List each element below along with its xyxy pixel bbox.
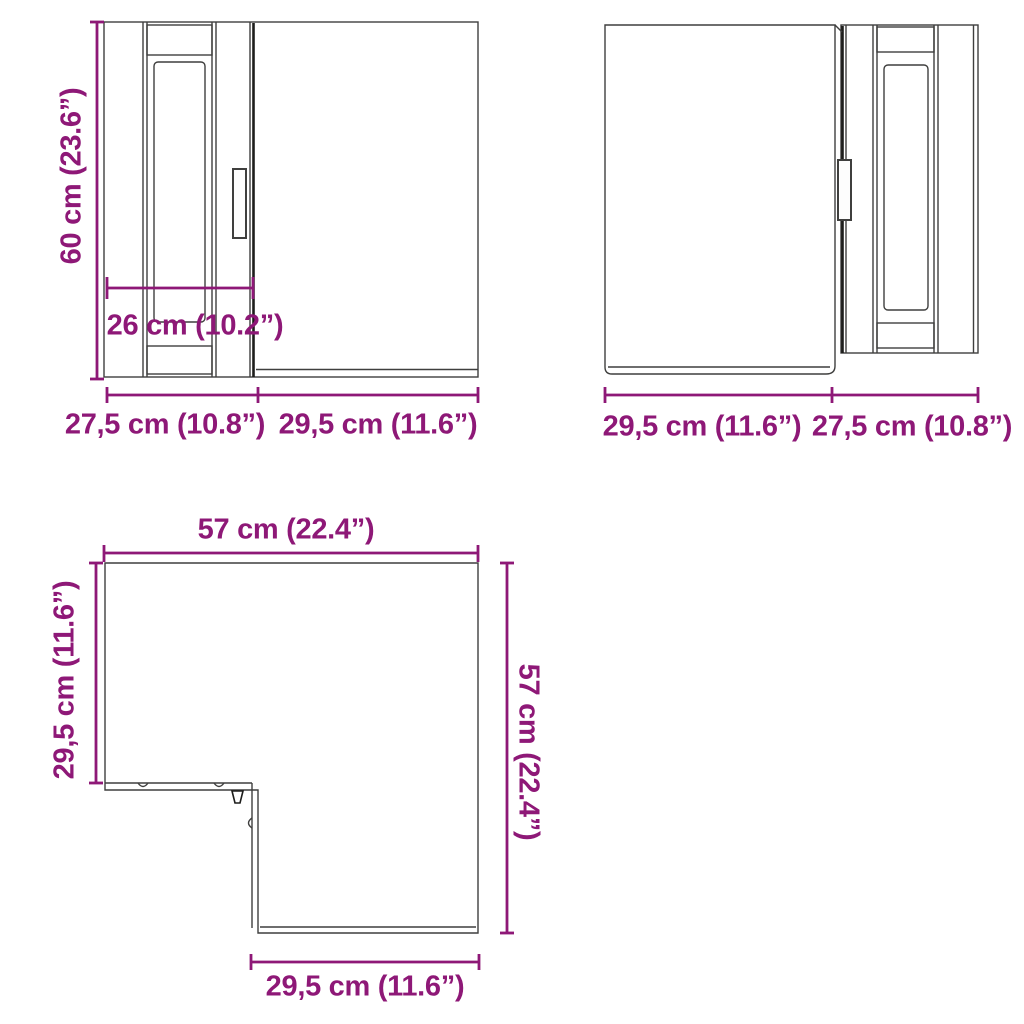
- door-bottom-rail: [147, 346, 212, 374]
- dim-label-top-view-depth-left: 29,5 cm (11.6”): [51, 581, 80, 780]
- cabinet-dimension-diagram: 60 cm (23.6”) 26 cm (10.2”) 27,5 cm (10.…: [0, 0, 1024, 1024]
- door-handle-top-view: [232, 791, 243, 803]
- door-handle: [233, 169, 246, 238]
- door-top-rail: [877, 27, 934, 52]
- dim-label-front-right-bottom-left-width: 29,5 cm (11.6”): [603, 413, 802, 442]
- dim-label-top-view-width-bottom: 29,5 cm (11.6”): [266, 973, 465, 1002]
- top-view-dimension-lines: [89, 545, 514, 970]
- door-handle: [838, 160, 851, 220]
- door-bottom-rail: [877, 323, 934, 348]
- door-top-rail: [147, 25, 212, 55]
- front-right-dimension-lines: [605, 387, 978, 403]
- dim-label-top-view-width-top: 57 cm (22.4”): [198, 516, 375, 545]
- door-panel: [154, 62, 205, 322]
- dim-label-front-left-bottom-right-width: 29,5 cm (11.6”): [279, 411, 478, 440]
- diagram-line-art: [0, 0, 1024, 1024]
- door-panel: [884, 65, 928, 310]
- dim-label-front-right-bottom-right-width: 27,5 cm (10.8”): [812, 413, 1012, 442]
- dim-label-front-left-door-width: 26 cm (10.2”): [107, 312, 284, 341]
- dim-label-front-left-height: 60 cm (23.6”): [58, 88, 87, 265]
- front-view-right-cabinet: [605, 25, 978, 374]
- dim-label-top-view-height-right: 57 cm (22.4”): [514, 664, 543, 841]
- top-view-cabinet: [105, 563, 478, 933]
- dim-label-front-left-bottom-left-width: 27,5 cm (10.8”): [65, 411, 265, 440]
